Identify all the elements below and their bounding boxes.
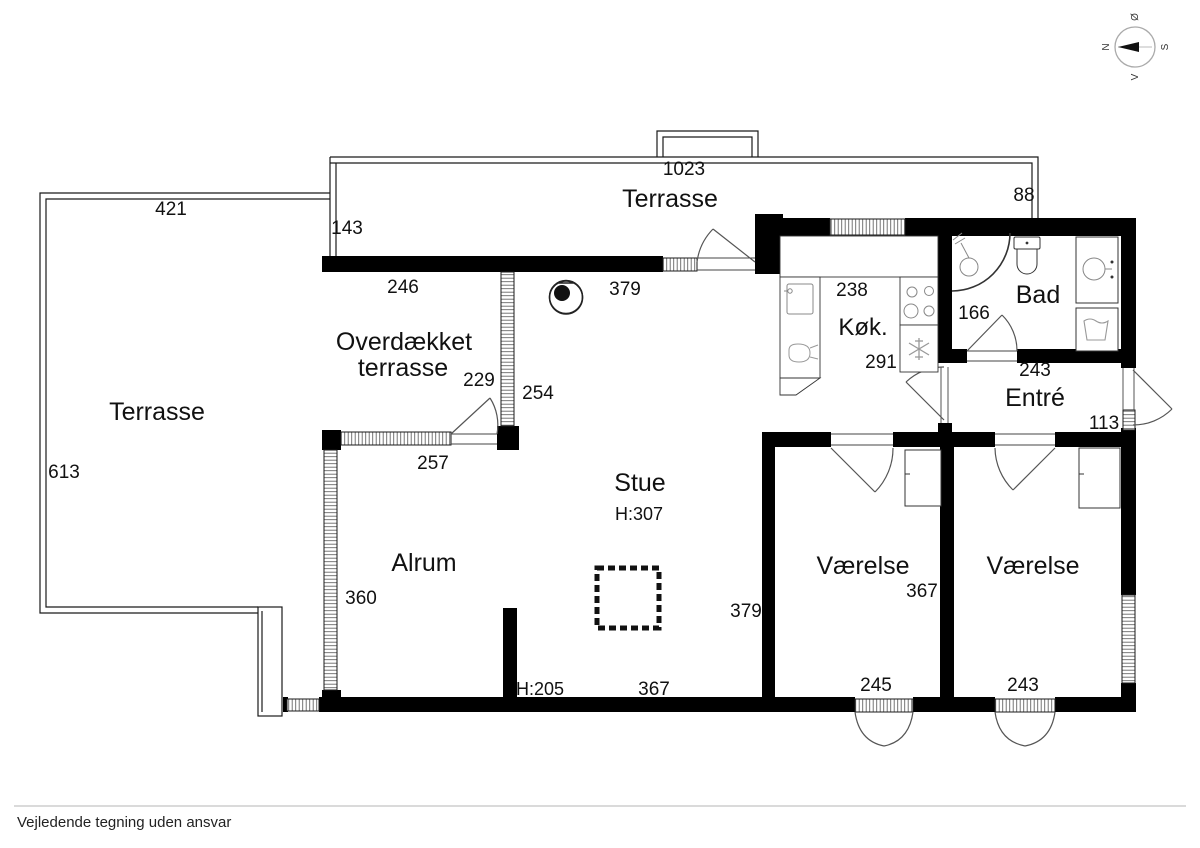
room-label-bad: Bad bbox=[1016, 281, 1060, 309]
dim-246: 246 bbox=[387, 277, 419, 298]
vanity-sink-icon bbox=[1076, 237, 1118, 303]
window bbox=[855, 699, 913, 712]
compass-s: S bbox=[1160, 43, 1171, 50]
window bbox=[663, 258, 697, 271]
fridge-icon bbox=[900, 325, 938, 372]
dim-421: 421 bbox=[155, 199, 187, 220]
wall-segment bbox=[1055, 697, 1136, 712]
dim-613: 613 bbox=[48, 462, 80, 483]
footer-disclaimer: Vejledende tegning uden ansvar bbox=[17, 814, 231, 831]
room-label-koekken: Køk. bbox=[838, 314, 887, 341]
room-label-vaerelse-right: Værelse bbox=[986, 552, 1079, 580]
wall-segment bbox=[322, 256, 663, 272]
dim-379-top: 379 bbox=[609, 279, 641, 300]
dim-243-entre: 243 bbox=[1019, 360, 1051, 381]
wall-segment bbox=[938, 349, 967, 363]
window bbox=[1122, 595, 1135, 683]
window bbox=[995, 699, 1055, 712]
dim-143: 143 bbox=[331, 218, 363, 239]
wall-post bbox=[497, 256, 519, 272]
room-label-terrasse-left: Terrasse bbox=[109, 398, 205, 426]
wall-segment bbox=[1121, 428, 1136, 595]
dim-88: 88 bbox=[1013, 185, 1034, 206]
wall-segment bbox=[1055, 432, 1121, 447]
wardrobe bbox=[1079, 448, 1120, 508]
ceiling-height-stue: H:307 bbox=[615, 504, 663, 524]
room-label-overdaekket-2: terrasse bbox=[358, 354, 448, 382]
dim-367-vaerelse: 367 bbox=[906, 581, 938, 602]
wall-segment bbox=[1121, 218, 1136, 368]
wall-segment bbox=[893, 432, 995, 447]
dim-254: 254 bbox=[522, 383, 554, 404]
room-label-alrum: Alrum bbox=[391, 549, 456, 577]
dim-166: 166 bbox=[958, 303, 990, 324]
room-label-terrasse-top: Terrasse bbox=[622, 185, 718, 213]
room-label-entre: Entré bbox=[1005, 384, 1065, 412]
wood-stove-icon bbox=[550, 281, 583, 314]
compass-n: N bbox=[1101, 43, 1112, 50]
wall-segment bbox=[938, 218, 952, 363]
dim-243-vaerelse: 243 bbox=[1007, 675, 1039, 696]
window bbox=[287, 699, 319, 711]
wall-segment bbox=[940, 447, 954, 712]
room-label-overdaekket-1: Overdækket bbox=[336, 328, 472, 356]
compass-e: Ø bbox=[1130, 13, 1141, 21]
wall-post bbox=[497, 426, 519, 450]
dim-229: 229 bbox=[463, 370, 495, 391]
dim-360: 360 bbox=[345, 588, 377, 609]
toilet-icon bbox=[1014, 237, 1040, 274]
window-sidelight bbox=[1123, 410, 1135, 430]
window bbox=[830, 219, 905, 235]
wall-segment bbox=[319, 697, 855, 712]
wardrobe bbox=[905, 450, 941, 506]
dim-291: 291 bbox=[865, 352, 897, 373]
dim-238: 238 bbox=[836, 280, 868, 301]
glazed-wall-overdaekket-east bbox=[501, 272, 514, 426]
wall-post bbox=[322, 430, 341, 450]
kitchen-counter-left bbox=[780, 277, 820, 378]
stove-icon bbox=[900, 277, 938, 325]
dim-379-stue: 379 bbox=[730, 601, 762, 622]
dim-113: 113 bbox=[1089, 413, 1119, 434]
dim-h205: H:205 bbox=[516, 679, 564, 699]
dim-1023: 1023 bbox=[663, 159, 705, 180]
dim-245: 245 bbox=[860, 675, 892, 696]
wall-post bbox=[322, 690, 341, 712]
dim-257: 257 bbox=[417, 453, 449, 474]
compass-w: V bbox=[1130, 73, 1141, 80]
floorplan-page: N Ø S V Terrasse Terrasse Overdækket ter… bbox=[0, 0, 1200, 848]
wall-segment bbox=[503, 608, 517, 712]
glazed-wall-alrum-west bbox=[324, 450, 337, 690]
wall-segment bbox=[762, 218, 830, 236]
glazed-wall-alrum-north bbox=[341, 432, 451, 445]
room-label-vaerelse-left: Værelse bbox=[816, 552, 909, 580]
laundry-basket-icon bbox=[1076, 308, 1118, 351]
wall-segment bbox=[913, 697, 995, 712]
dim-367-bottom: 367 bbox=[638, 679, 670, 700]
kitchen-counter-top bbox=[780, 236, 938, 277]
skylight-dashed-square bbox=[597, 568, 659, 628]
floorplan-canvas: N Ø S V Terrasse Terrasse Overdækket ter… bbox=[0, 0, 1200, 848]
room-label-stue: Stue bbox=[614, 469, 665, 497]
wall-segment bbox=[762, 432, 775, 712]
